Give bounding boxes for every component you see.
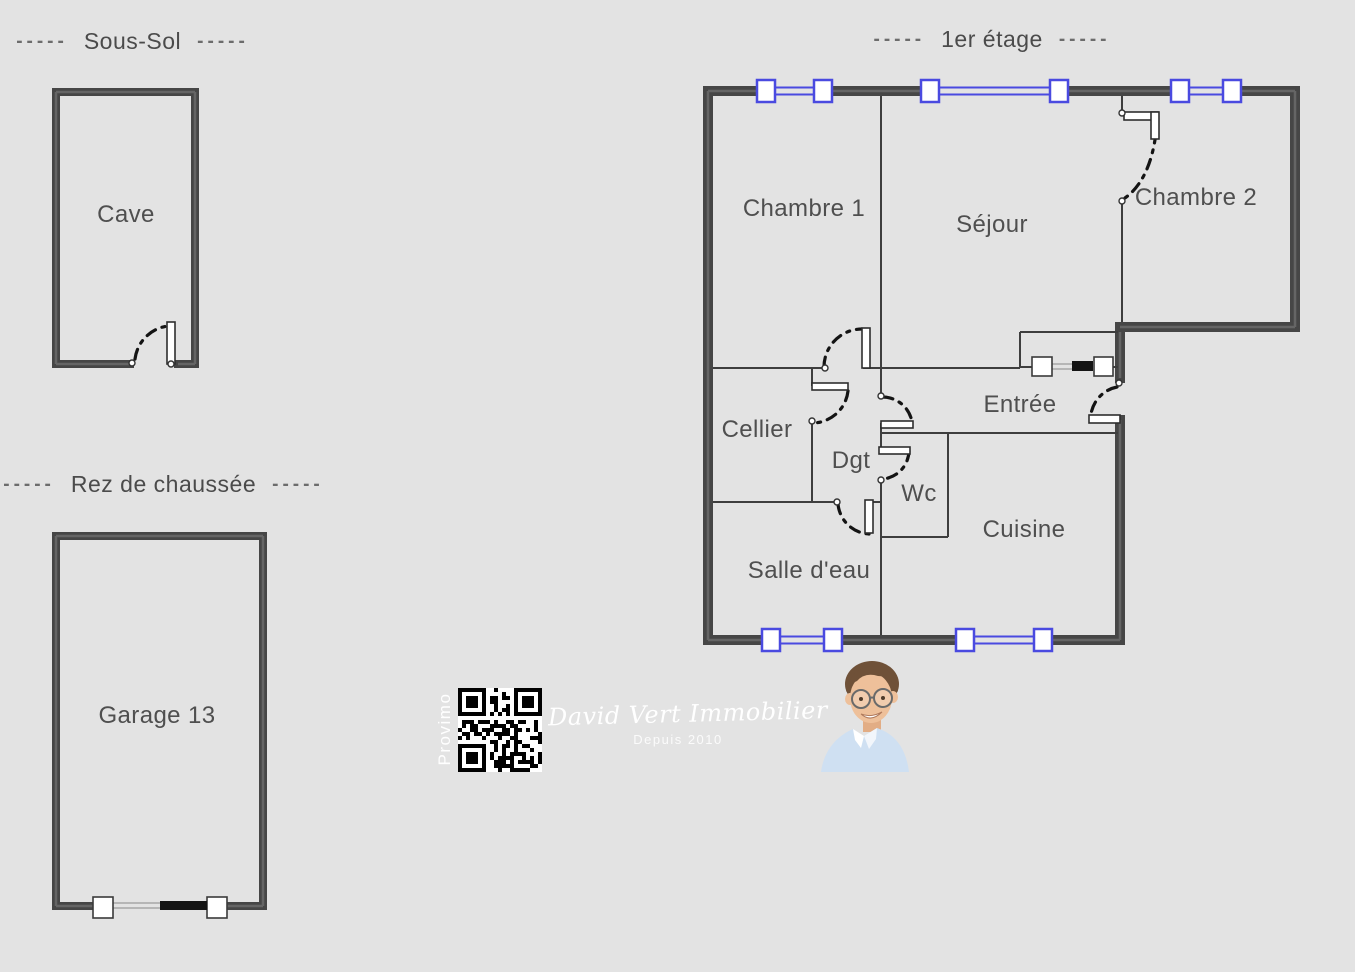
room-label-chambre2: Chambre 2: [1135, 184, 1257, 211]
cave-door-jamb: [129, 360, 135, 366]
room-label-dgt: Dgt: [832, 447, 871, 474]
room-label-entree: Entrée: [983, 391, 1056, 418]
door-salle-deau: [834, 499, 873, 534]
window-sejour: [921, 80, 1068, 102]
window-chambre2: [1171, 80, 1241, 102]
plan-rez-garage: Garage 13: [56, 536, 263, 918]
plan-premier-etage: Chambre 1 Séjour Chambre 2 Cellier Dgt W…: [708, 80, 1295, 651]
room-label-wc: Wc: [901, 480, 936, 507]
window-salle-deau: [762, 629, 842, 651]
door-chambre1: [822, 328, 870, 371]
window-cuisine: [956, 629, 1052, 651]
cave-door-swing-arc: [135, 326, 168, 359]
room-label-salle-deau: Salle d'eau: [748, 557, 870, 584]
room-label-cellier: Cellier: [722, 416, 793, 443]
floor-plan-drawing: Cave Garage 13: [0, 0, 1355, 972]
etage-interior-walls: [713, 96, 1122, 635]
floorplan-page: ----- Sous-Sol ----- ----- Rez de chauss…: [0, 0, 1355, 972]
avatar-eye: [859, 697, 863, 701]
qr-code: [458, 688, 542, 772]
door-entree-main: [1032, 357, 1113, 376]
agency-tagline: Depuis 2010: [548, 732, 808, 747]
garage-door-post: [207, 897, 227, 918]
room-label-chambre1: Chambre 1: [743, 195, 865, 222]
cave-door-leaf: [167, 322, 175, 364]
plan-sous-sol-cave: Cave: [56, 92, 195, 367]
agent-photo: [813, 654, 915, 772]
room-label-sejour: Séjour: [956, 211, 1028, 238]
garage-door-post: [93, 897, 113, 918]
window-chambre1: [757, 80, 832, 102]
room-label-cuisine: Cuisine: [983, 516, 1066, 543]
avatar-glasses-bridge: [870, 698, 874, 699]
avatar-shirt: [821, 728, 909, 772]
agency-name: David Vert Immobilier: [548, 697, 809, 732]
provimo-vertical-label: Provimo: [434, 674, 456, 784]
cave-door-jamb: [168, 361, 174, 367]
door-wc: [878, 447, 910, 483]
door-cellier: [809, 383, 848, 424]
room-label-cave: Cave: [97, 201, 155, 228]
agency-logo: David Vert Immobilier Depuis 2010: [548, 700, 808, 747]
room-label-garage: Garage 13: [98, 702, 215, 729]
door-entree-side: [1089, 380, 1122, 423]
door-sejour: [878, 393, 913, 428]
garage-door-track: [113, 903, 160, 908]
garage-door-leaf: [160, 901, 207, 910]
avatar-eye: [881, 696, 885, 700]
